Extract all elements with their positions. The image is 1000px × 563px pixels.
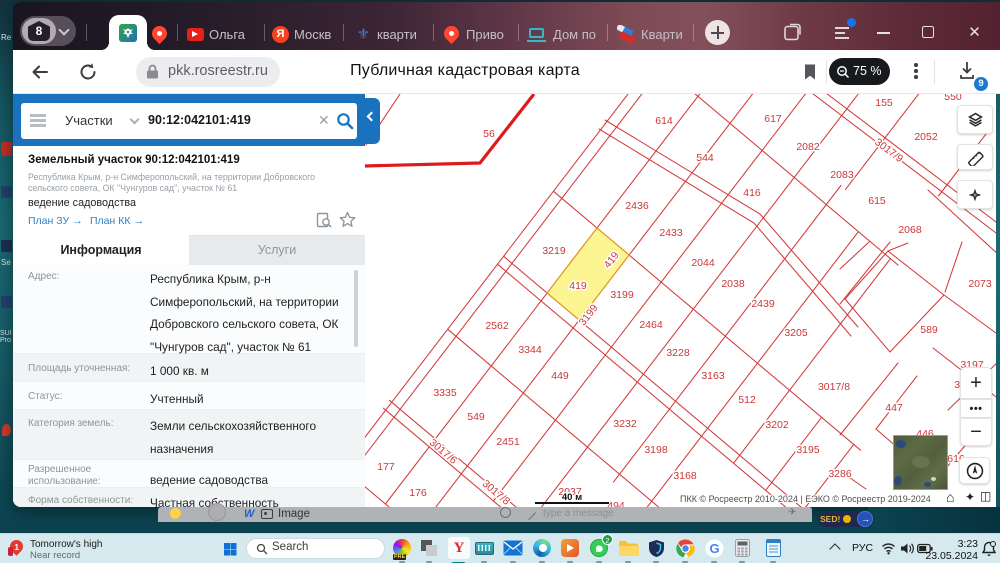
svg-text:447: 447 (885, 402, 903, 414)
svg-text:494: 494 (607, 500, 625, 507)
svg-text:549: 549 (467, 411, 485, 423)
svg-text:2436: 2436 (625, 200, 649, 212)
svg-text:544: 544 (696, 152, 714, 164)
svg-text:2038: 2038 (721, 278, 745, 290)
svg-text:2451: 2451 (496, 436, 520, 448)
svg-text:2433: 2433 (659, 227, 683, 239)
svg-text:419: 419 (569, 280, 587, 292)
svg-text:3199: 3199 (610, 289, 634, 301)
svg-text:416: 416 (743, 187, 761, 199)
svg-text:2083: 2083 (830, 169, 854, 181)
svg-text:3017/6: 3017/6 (427, 437, 459, 467)
svg-text:40 м: 40 м (562, 492, 582, 503)
svg-text:G: G (709, 541, 719, 556)
svg-text:3017/8: 3017/8 (818, 381, 850, 393)
svg-text:3202: 3202 (765, 419, 789, 431)
svg-text:176: 176 (409, 487, 427, 499)
svg-text:3198: 3198 (644, 444, 668, 456)
svg-text:449: 449 (551, 370, 569, 382)
svg-text:615: 615 (868, 195, 886, 207)
svg-text:550: 550 (944, 94, 962, 103)
svg-text:2068: 2068 (898, 224, 922, 236)
svg-text:2082: 2082 (796, 141, 820, 153)
svg-text:3163: 3163 (701, 370, 725, 382)
svg-text:3195: 3195 (796, 444, 820, 456)
svg-text:3286: 3286 (828, 468, 852, 480)
svg-text:2439: 2439 (751, 298, 775, 310)
svg-text:3205: 3205 (784, 327, 808, 339)
svg-text:617: 617 (764, 113, 782, 125)
svg-text:ПКК © Росреестр 2010-2024 | ЕЭ: ПКК © Росреестр 2010-2024 | ЕЭКО © Росре… (680, 494, 931, 504)
svg-text:3232: 3232 (613, 418, 637, 430)
svg-text:2464: 2464 (639, 319, 663, 331)
svg-text:3168: 3168 (673, 470, 697, 482)
svg-text:2052: 2052 (914, 131, 938, 143)
svg-text:155: 155 (875, 97, 893, 109)
svg-text:2044: 2044 (691, 257, 715, 269)
svg-text:3344: 3344 (518, 344, 542, 356)
svg-text:512: 512 (738, 394, 756, 406)
svg-text:589: 589 (920, 324, 938, 336)
svg-text:3335: 3335 (433, 387, 457, 399)
svg-text:177: 177 (377, 461, 395, 473)
svg-text:2562: 2562 (485, 320, 509, 332)
svg-text:2073: 2073 (968, 278, 992, 290)
svg-text:3228: 3228 (666, 347, 690, 359)
svg-text:3219: 3219 (542, 245, 566, 257)
svg-text:56: 56 (483, 128, 495, 140)
svg-text:614: 614 (655, 115, 673, 127)
